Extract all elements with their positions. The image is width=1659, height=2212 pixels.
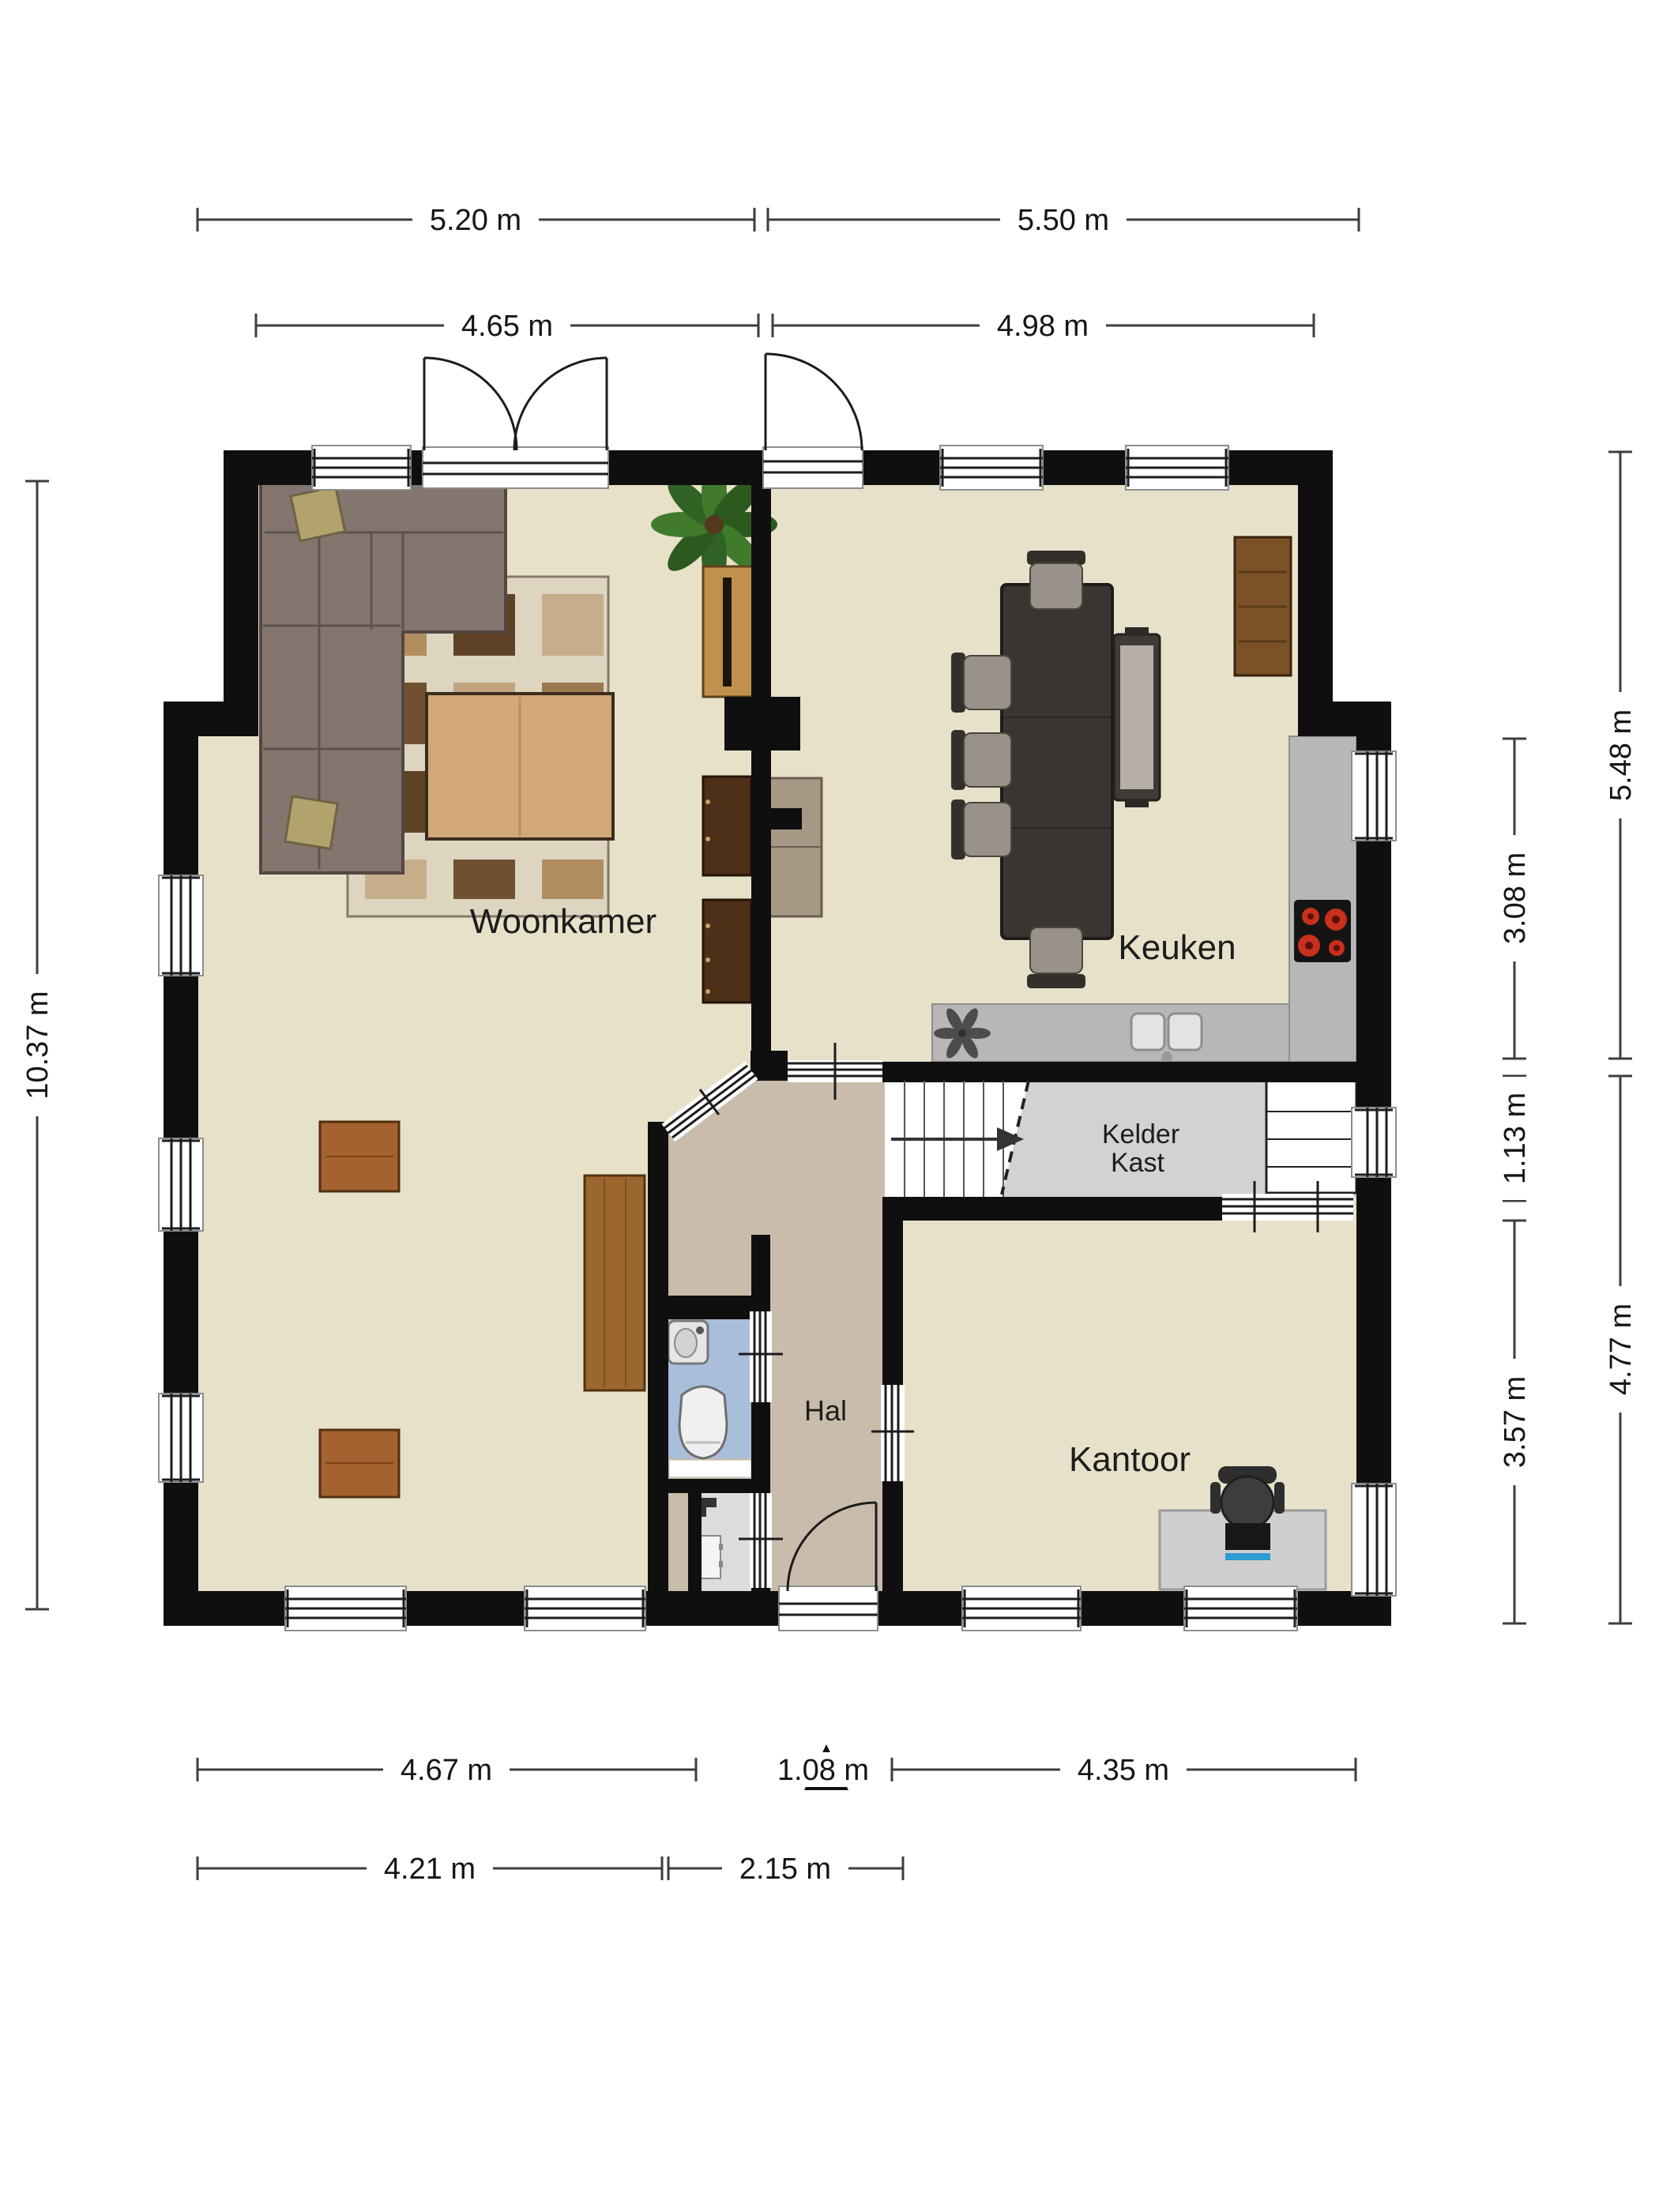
dimension: 5.20 m bbox=[197, 202, 754, 237]
svg-text:3.08 m: 3.08 m bbox=[1499, 852, 1532, 944]
dimension: 4.65 m bbox=[256, 308, 758, 343]
cooktop bbox=[1294, 900, 1351, 962]
window bbox=[1352, 1108, 1396, 1177]
svg-text:5.48 m: 5.48 m bbox=[1604, 709, 1638, 801]
wall-upper-right bbox=[1298, 450, 1333, 711]
svg-text:3.57 m: 3.57 m bbox=[1499, 1376, 1532, 1468]
dining-chair bbox=[951, 653, 1011, 713]
dimension: 4.77 m bbox=[1603, 1076, 1638, 1623]
svg-text:1.13 m: 1.13 m bbox=[1499, 1093, 1532, 1184]
label-woonkamer: Woonkamer bbox=[470, 902, 656, 941]
svg-text:2.15 m: 2.15 m bbox=[739, 1853, 831, 1886]
window bbox=[159, 875, 203, 976]
dimension: 1.08 m bbox=[764, 1752, 882, 1787]
wall-divider-block bbox=[762, 808, 802, 829]
monitor bbox=[1225, 1523, 1270, 1560]
label-kelder: Kelder bbox=[1102, 1119, 1179, 1149]
sideboard bbox=[703, 566, 753, 697]
dimension: 1.13 m bbox=[1497, 1076, 1532, 1201]
bookcase bbox=[585, 1176, 645, 1390]
dining-chair bbox=[951, 730, 1011, 790]
dimension: 4.67 m bbox=[197, 1752, 696, 1787]
dimension: 3.57 m bbox=[1497, 1221, 1532, 1623]
label-kantoor: Kantoor bbox=[1069, 1440, 1191, 1479]
svg-text:4.35 m: 4.35 m bbox=[1078, 1754, 1169, 1787]
wall-hall-west bbox=[648, 1122, 668, 1591]
dimension: 3.08 m bbox=[1497, 739, 1532, 1059]
side-table bbox=[320, 1430, 399, 1497]
toilet-shelf bbox=[669, 1460, 751, 1477]
wall-divider-living-kitchen bbox=[751, 485, 771, 1078]
side-table bbox=[320, 1122, 399, 1191]
double-garden-door bbox=[423, 358, 608, 488]
dimension: 4.21 m bbox=[197, 1851, 662, 1886]
coffee-table bbox=[427, 694, 613, 839]
wall-divider-stub bbox=[724, 697, 800, 750]
dining-chair bbox=[951, 799, 1011, 860]
label-kast: Kast bbox=[1111, 1148, 1165, 1178]
window bbox=[159, 1394, 203, 1482]
floorplan-page: Woonkamer Keuken Kelder Kast Hal Kantoor… bbox=[0, 0, 1659, 2212]
wall-below-stairs bbox=[882, 1197, 1222, 1221]
window bbox=[1352, 1484, 1396, 1596]
kitchen-counter-vertical bbox=[1289, 736, 1356, 1062]
window bbox=[1184, 1586, 1297, 1631]
shelving-unit bbox=[1266, 1081, 1356, 1193]
svg-text:4.21 m: 4.21 m bbox=[384, 1853, 476, 1886]
window bbox=[312, 446, 411, 490]
cabinet-light bbox=[769, 778, 822, 916]
window bbox=[285, 1586, 406, 1631]
wall-kelder-top bbox=[882, 1062, 1356, 1082]
kitchen-garden-door bbox=[763, 354, 863, 488]
wall-upper-left bbox=[224, 450, 258, 711]
toilet-sink bbox=[668, 1321, 708, 1364]
sofa-pillow bbox=[285, 796, 337, 848]
cabinet-dark-lower bbox=[703, 900, 751, 1003]
dimension: 5.50 m bbox=[768, 202, 1359, 237]
wall-closet-west bbox=[688, 1493, 702, 1591]
window bbox=[159, 1138, 203, 1231]
dimension: 2.15 m bbox=[668, 1851, 903, 1886]
svg-text:4.98 m: 4.98 m bbox=[997, 310, 1089, 343]
kitchen-tall-cabinet bbox=[1235, 537, 1291, 675]
window bbox=[962, 1586, 1081, 1631]
dining-chair bbox=[1027, 551, 1085, 609]
svg-text:5.20 m: 5.20 m bbox=[430, 204, 521, 237]
toilet bbox=[679, 1386, 727, 1458]
svg-text:4.67 m: 4.67 m bbox=[401, 1754, 492, 1787]
dimension: 5.48 m bbox=[1603, 452, 1638, 1059]
dimension: 4.35 m bbox=[892, 1752, 1356, 1787]
label-keuken: Keuken bbox=[1118, 928, 1236, 967]
window bbox=[1126, 446, 1228, 490]
dining-table bbox=[1002, 585, 1112, 939]
label-hal: Hal bbox=[804, 1394, 847, 1427]
window bbox=[940, 446, 1043, 490]
svg-text:4.77 m: 4.77 m bbox=[1604, 1303, 1638, 1395]
dining-chair bbox=[1027, 927, 1085, 988]
svg-text:1.08 m: 1.08 m bbox=[777, 1754, 869, 1787]
svg-text:10.37 m: 10.37 m bbox=[21, 991, 55, 1099]
window bbox=[1352, 751, 1396, 841]
wall-hall-corner bbox=[750, 1051, 788, 1081]
sofa-pillow bbox=[291, 487, 345, 541]
svg-text:4.65 m: 4.65 m bbox=[461, 310, 553, 343]
dimension: 4.98 m bbox=[773, 308, 1314, 343]
window bbox=[525, 1586, 645, 1631]
dimension: 10.37 m bbox=[20, 481, 55, 1609]
floorplan-canvas: Woonkamer Keuken Kelder Kast Hal Kantoor… bbox=[0, 0, 1659, 2212]
svg-text:5.50 m: 5.50 m bbox=[1018, 204, 1109, 237]
dining-bench bbox=[1114, 627, 1160, 807]
cabinet-dark-upper bbox=[703, 777, 751, 875]
